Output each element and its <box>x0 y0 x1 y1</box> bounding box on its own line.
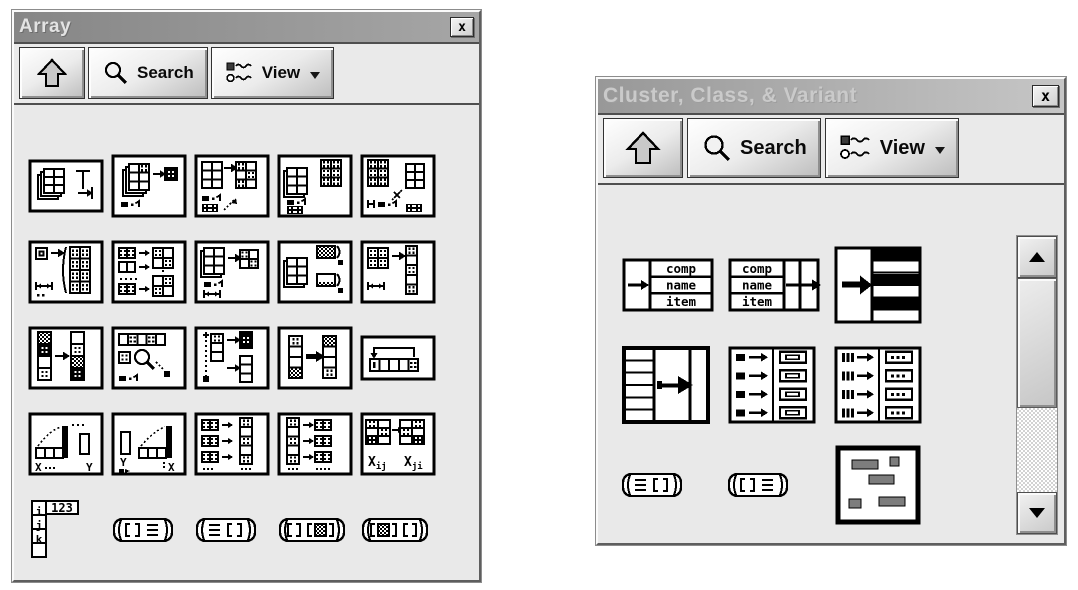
scrollbar <box>1016 235 1058 535</box>
array-palette-window: Array x Search View XYYXXijXjiijk123 <box>12 10 481 582</box>
bundle-by-name-icon: compnameitem <box>620 252 716 318</box>
array-max-and-min-item[interactable] <box>277 240 353 304</box>
interpolate-1d-array-item[interactable]: XY <box>28 412 104 476</box>
array-to-matrix-item[interactable] <box>277 516 347 544</box>
scrollbar-track[interactable] <box>1017 408 1057 492</box>
view-caret-icon <box>935 147 945 154</box>
cluster-to-array-icon <box>194 516 258 544</box>
svg-text:comp: comp <box>742 261 772 276</box>
array-size-icon <box>28 159 104 213</box>
magnifier-icon <box>701 133 733 163</box>
svg-text:item: item <box>666 294 697 309</box>
palette-view-icon <box>225 61 255 85</box>
rotate-1d-array-item[interactable] <box>360 335 436 381</box>
cluster-to-array-item[interactable] <box>194 516 258 544</box>
cluster-view-button[interactable]: View <box>825 118 959 178</box>
svg-text:name: name <box>666 278 697 293</box>
svg-text:Y: Y <box>86 461 93 474</box>
interpolate-1d-array-icon: XY <box>28 412 104 476</box>
bundle-by-name-item[interactable]: compnameitem <box>620 252 716 318</box>
delete-from-array-icon <box>360 154 436 218</box>
array-constant-icon: ijk123 <box>28 497 82 563</box>
array-to-matrix-icon <box>277 516 347 544</box>
up-arrow-icon <box>624 130 662 166</box>
array-titlebar[interactable]: Array x <box>14 12 479 42</box>
matrix-to-array-icon <box>360 516 430 544</box>
array-toolbar: Search View <box>14 42 479 103</box>
cluster-window-title: Cluster, Class, & Variant <box>603 84 857 108</box>
reshape-array-item[interactable] <box>360 240 436 304</box>
array-search-button[interactable]: Search <box>88 47 208 99</box>
cluster-titlebar[interactable]: Cluster, Class, & Variant x <box>598 79 1064 113</box>
array-icon-grid: XYYXXijXjiijk123 <box>14 105 443 580</box>
insert-into-array-item[interactable] <box>277 154 353 218</box>
cluster-constant-item[interactable] <box>832 444 924 526</box>
svg-text:comp: comp <box>666 261 696 276</box>
array-to-cluster-item[interactable] <box>111 516 175 544</box>
array-close-button[interactable]: x <box>450 17 474 37</box>
view-caret-icon <box>310 72 320 79</box>
search-button-label: Search <box>137 63 194 83</box>
svg-text:123: 123 <box>51 501 73 515</box>
scroll-down-button[interactable] <box>1017 492 1057 534</box>
rotate-1d-array-icon <box>360 335 436 381</box>
split-1d-array-icon <box>194 326 270 390</box>
sort-1d-array-item[interactable] <box>28 326 104 390</box>
palette-view-icon <box>839 134 873 162</box>
search-button-label: Search <box>740 137 807 160</box>
array-up-button[interactable] <box>19 47 85 99</box>
bundle-item[interactable] <box>832 244 924 326</box>
build-cluster-array-icon <box>726 344 818 426</box>
initialize-array-icon <box>28 240 104 304</box>
view-button-label: View <box>262 63 300 83</box>
transpose-2d-array-item[interactable]: XijXji <box>360 412 436 476</box>
scroll-up-button[interactable] <box>1017 236 1057 278</box>
build-array-icon <box>111 240 187 304</box>
unbundle-icon <box>620 344 712 426</box>
scroll-down-icon <box>1029 508 1045 518</box>
sort-1d-array-icon <box>28 326 104 390</box>
array-to-cluster-icon <box>726 471 790 499</box>
interleave-1d-arrays-item[interactable] <box>194 412 270 476</box>
up-arrow-icon <box>35 57 69 89</box>
matrix-to-array-item[interactable] <box>360 516 430 544</box>
index-array-icon <box>111 154 187 218</box>
unbundle-by-name-item[interactable]: compnameitem <box>726 252 822 318</box>
array-to-cluster-item[interactable] <box>726 471 790 499</box>
initialize-array-item[interactable] <box>28 240 104 304</box>
insert-into-array-icon <box>277 154 353 218</box>
svg-text:X: X <box>168 461 175 474</box>
cluster-palette-window: Cluster, Class, & Variant x Search View … <box>596 77 1066 545</box>
unbundle-by-name-icon: compnameitem <box>726 252 822 318</box>
transpose-2d-array-icon: XijXji <box>360 412 436 476</box>
reverse-1d-array-icon <box>277 326 353 390</box>
index-and-bundle-cluster-array-item[interactable] <box>832 344 924 426</box>
svg-text:item: item <box>742 294 773 309</box>
cluster-search-button[interactable]: Search <box>687 118 821 178</box>
array-view-button[interactable]: View <box>211 47 334 99</box>
index-array-item[interactable] <box>111 154 187 218</box>
cluster-to-array-icon <box>620 471 684 499</box>
array-window-title: Array <box>19 16 71 38</box>
build-array-item[interactable] <box>111 240 187 304</box>
threshold-1d-array-item[interactable]: YX <box>111 412 187 476</box>
cluster-up-button[interactable] <box>603 118 683 178</box>
view-button-label: View <box>880 137 925 160</box>
array-max-and-min-icon <box>277 240 353 304</box>
replace-array-subset-item[interactable] <box>194 154 270 218</box>
scroll-up-icon <box>1029 252 1045 262</box>
array-subset-icon <box>194 240 270 304</box>
reshape-array-icon <box>360 240 436 304</box>
decimate-1d-array-item[interactable] <box>277 412 353 476</box>
svg-text:k: k <box>36 533 43 546</box>
bundle-icon <box>832 244 924 326</box>
threshold-1d-array-icon: YX <box>111 412 187 476</box>
array-constant-item[interactable]: ijk123 <box>28 497 82 563</box>
decimate-1d-array-icon <box>277 412 353 476</box>
cluster-palette-content: compnameitemcompnameitem <box>598 183 1064 543</box>
svg-text:name: name <box>742 278 773 293</box>
svg-text:j: j <box>36 519 43 532</box>
svg-text:Y: Y <box>120 456 127 469</box>
cluster-close-button[interactable]: x <box>1032 85 1059 107</box>
delete-from-array-item[interactable] <box>360 154 436 218</box>
array-subset-item[interactable] <box>194 240 270 304</box>
interleave-1d-arrays-icon <box>194 412 270 476</box>
svg-text:X: X <box>35 461 42 474</box>
array-palette-content: XYYXXijXjiijk123 <box>14 103 479 580</box>
cluster-toolbar: Search View <box>598 113 1064 183</box>
build-cluster-array-item[interactable] <box>726 344 818 426</box>
search-1d-array-item[interactable] <box>111 326 187 390</box>
scrollbar-thumb[interactable] <box>1017 278 1057 408</box>
cluster-constant-icon <box>832 444 924 526</box>
unbundle-item[interactable] <box>620 344 712 426</box>
array-size-item[interactable] <box>28 159 104 213</box>
split-1d-array-item[interactable] <box>194 326 270 390</box>
cluster-icon-grid: compnameitemcompnameitem <box>598 185 1016 543</box>
replace-array-subset-icon <box>194 154 270 218</box>
svg-text:i: i <box>36 505 43 518</box>
cluster-to-array-item[interactable] <box>620 471 684 499</box>
index-and-bundle-cluster-array-icon <box>832 344 924 426</box>
magnifier-icon <box>102 60 130 86</box>
search-1d-array-icon <box>111 326 187 390</box>
array-to-cluster-icon <box>111 516 175 544</box>
reverse-1d-array-item[interactable] <box>277 326 353 390</box>
